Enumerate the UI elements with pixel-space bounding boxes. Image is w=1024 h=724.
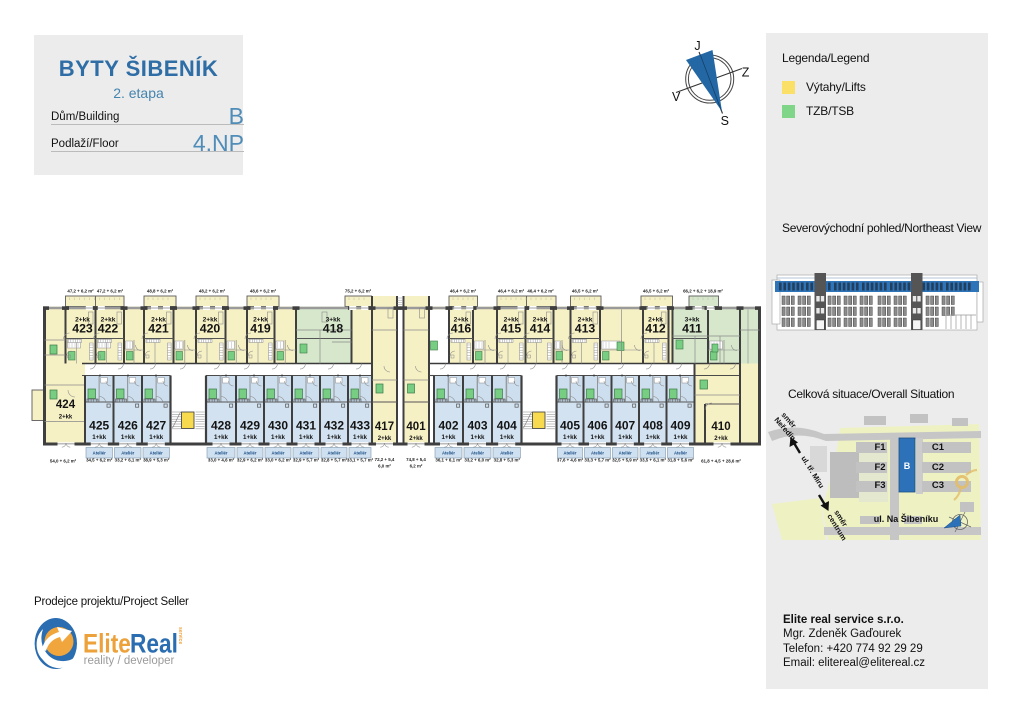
- svg-text:415: 415: [501, 322, 522, 336]
- svg-text:6,0 m²: 6,0 m²: [378, 464, 391, 469]
- svg-text:1+kk: 1+kk: [646, 434, 660, 441]
- svg-text:Ateliér: Ateliér: [327, 451, 340, 456]
- svg-text:427: 427: [146, 419, 166, 433]
- svg-text:1+kk: 1+kk: [353, 434, 367, 441]
- svg-text:Ateliér: Ateliér: [619, 451, 632, 456]
- svg-text:Ateliér: Ateliér: [353, 451, 366, 456]
- svg-text:Ateliér: Ateliér: [299, 451, 312, 456]
- svg-text:33,2 + 6,0 m²: 33,2 + 6,0 m²: [464, 458, 491, 463]
- svg-text:430: 430: [268, 419, 288, 433]
- svg-text:2+kk: 2+kk: [75, 317, 90, 324]
- svg-text:32,5 + 5,9 m²: 32,5 + 5,9 m²: [612, 458, 639, 463]
- svg-text:2+kk: 2+kk: [253, 317, 268, 324]
- svg-text:405: 405: [560, 419, 580, 433]
- svg-text:38,9 + 5,3 m²: 38,9 + 5,3 m²: [143, 458, 170, 463]
- svg-text:Ateliér: Ateliér: [471, 451, 484, 456]
- svg-text:C3: C3: [932, 480, 944, 491]
- svg-text:Ateliér: Ateliér: [646, 451, 659, 456]
- svg-text:431: 431: [296, 419, 316, 433]
- svg-text:2+kk: 2+kk: [454, 317, 469, 324]
- svg-text:1+kk: 1+kk: [500, 434, 514, 441]
- svg-text:416: 416: [451, 322, 472, 336]
- svg-text:1+kk: 1+kk: [299, 434, 313, 441]
- svg-text:3+kk: 3+kk: [326, 317, 341, 324]
- svg-text:408: 408: [643, 419, 663, 433]
- svg-text:432: 432: [324, 419, 344, 433]
- svg-text:433: 433: [350, 419, 370, 433]
- svg-text:ul. Na Šibeníku: ul. Na Šibeníku: [874, 513, 939, 524]
- svg-text:2+kk: 2+kk: [59, 415, 73, 421]
- svg-text:32,9 + 6,2 m²: 32,9 + 6,2 m²: [237, 458, 264, 463]
- svg-text:46,4 + 6,2 m²: 46,4 + 6,2 m²: [527, 289, 554, 294]
- svg-text:2+kk: 2+kk: [203, 317, 218, 324]
- svg-text:36,1 + 6,1 m²: 36,1 + 6,1 m²: [435, 458, 462, 463]
- svg-text:1+kk: 1+kk: [471, 434, 485, 441]
- svg-text:412: 412: [645, 322, 666, 336]
- svg-text:32,8 + 5,7 m²: 32,8 + 5,7 m²: [321, 458, 348, 463]
- svg-text:Ateliér: Ateliér: [243, 451, 256, 456]
- svg-text:404: 404: [497, 419, 517, 433]
- svg-text:2+kk: 2+kk: [378, 436, 392, 442]
- svg-text:37,6 + 4,6 m²: 37,6 + 4,6 m²: [557, 458, 584, 463]
- svg-text:C2: C2: [932, 462, 944, 473]
- svg-text:47,2 + 6,2 m²: 47,2 + 6,2 m²: [97, 289, 124, 294]
- svg-text:1+kk: 1+kk: [149, 434, 163, 441]
- svg-text:2+kk: 2+kk: [504, 317, 519, 324]
- svg-text:Ateliér: Ateliér: [674, 451, 687, 456]
- svg-text:Ateliér: Ateliér: [500, 451, 513, 456]
- svg-text:46,4 + 6,2 m²: 46,4 + 6,2 m²: [498, 289, 525, 294]
- svg-text:1+kk: 1+kk: [442, 434, 456, 441]
- svg-text:33,3 + 5,7 m²: 33,3 + 5,7 m²: [584, 458, 611, 463]
- svg-text:411: 411: [682, 322, 702, 336]
- svg-text:423: 423: [72, 322, 93, 336]
- svg-text:V: V: [672, 90, 681, 104]
- svg-text:418: 418: [323, 322, 344, 336]
- svg-text:1+kk: 1+kk: [214, 434, 228, 441]
- svg-text:422: 422: [98, 322, 119, 336]
- svg-text:33,5 + 6,1 m²: 33,5 + 6,1 m²: [640, 458, 667, 463]
- svg-text:Ateliér: Ateliér: [121, 451, 134, 456]
- svg-text:34,5 + 6,2 m²: 34,5 + 6,2 m²: [86, 458, 113, 463]
- svg-text:2+kk: 2+kk: [101, 317, 116, 324]
- svg-text:401: 401: [406, 421, 426, 433]
- svg-text:421: 421: [148, 322, 169, 336]
- svg-text:B: B: [904, 461, 911, 471]
- svg-text:61,8 + 4,5 + 28,6 m²: 61,8 + 4,5 + 28,6 m²: [701, 459, 741, 464]
- svg-text:Ateliér: Ateliér: [563, 451, 576, 456]
- svg-text:47,2 + 6,2 m²: 47,2 + 6,2 m²: [67, 289, 94, 294]
- svg-text:C1: C1: [932, 442, 945, 453]
- svg-text:429: 429: [240, 419, 260, 433]
- svg-text:66,2 + 6,2 + 18,9 m²: 66,2 + 6,2 + 18,9 m²: [683, 289, 723, 294]
- svg-text:74,8 + 5,4: 74,8 + 5,4: [406, 457, 426, 462]
- svg-text:F1: F1: [874, 442, 886, 453]
- svg-text:2+kk: 2+kk: [714, 436, 728, 442]
- svg-text:426: 426: [118, 419, 138, 433]
- svg-text:1+kk: 1+kk: [327, 434, 341, 441]
- svg-text:2+kk: 2+kk: [648, 317, 663, 324]
- svg-text:2+kk: 2+kk: [578, 317, 593, 324]
- svg-text:1+kk: 1+kk: [271, 434, 285, 441]
- svg-text:3+kk: 3+kk: [685, 317, 700, 324]
- svg-text:Ateliér: Ateliér: [591, 451, 604, 456]
- svg-text:46,5 + 6,2 m²: 46,5 + 6,2 m²: [643, 289, 670, 294]
- svg-text:403: 403: [467, 419, 487, 433]
- svg-text:46,5 + 6,2 m²: 46,5 + 6,2 m²: [572, 289, 599, 294]
- svg-text:32,8 + 5,3 m²: 32,8 + 5,3 m²: [494, 458, 521, 463]
- svg-text:424: 424: [56, 399, 76, 411]
- svg-text:1+kk: 1+kk: [618, 434, 632, 441]
- svg-text:1+kk: 1+kk: [674, 434, 688, 441]
- svg-text:1+kk: 1+kk: [591, 434, 605, 441]
- svg-text:F3: F3: [874, 480, 885, 491]
- svg-text:2+kk: 2+kk: [151, 317, 166, 324]
- svg-text:413: 413: [575, 322, 596, 336]
- svg-text:1+kk: 1+kk: [243, 434, 257, 441]
- svg-text:F2: F2: [874, 462, 885, 473]
- svg-text:407: 407: [615, 419, 635, 433]
- svg-text:419: 419: [250, 322, 271, 336]
- svg-text:2+kk: 2+kk: [533, 317, 548, 324]
- svg-text:33,1 + 5,7 m²: 33,1 + 5,7 m²: [347, 458, 374, 463]
- svg-text:417: 417: [375, 421, 394, 433]
- svg-text:54,0 + 6,2 m²: 54,0 + 6,2 m²: [50, 459, 77, 464]
- svg-text:Ateliér: Ateliér: [214, 451, 227, 456]
- svg-text:Ateliér: Ateliér: [150, 451, 163, 456]
- svg-text:46,4 + 6,2 m²: 46,4 + 6,2 m²: [450, 289, 477, 294]
- svg-text:1+kk: 1+kk: [121, 434, 135, 441]
- svg-text:409: 409: [670, 419, 690, 433]
- svg-text:2+kk: 2+kk: [409, 436, 423, 442]
- svg-text:Ateliér: Ateliér: [442, 451, 455, 456]
- svg-text:48,8 + 6,2 m²: 48,8 + 6,2 m²: [147, 289, 174, 294]
- svg-text:33,0 + 6,2 m²: 33,0 + 6,2 m²: [265, 458, 292, 463]
- svg-text:406: 406: [587, 419, 607, 433]
- svg-text:Ateliér: Ateliér: [271, 451, 284, 456]
- svg-text:48,2 + 6,2 m²: 48,2 + 6,2 m²: [199, 289, 226, 294]
- svg-text:reality / developer: reality / developer: [84, 655, 175, 667]
- svg-text:425: 425: [89, 419, 109, 433]
- svg-text:410: 410: [711, 421, 730, 433]
- svg-text:75,2 + 6,2 m²: 75,2 + 6,2 m²: [345, 289, 372, 294]
- svg-text:428: 428: [211, 419, 231, 433]
- svg-text:32,9 + 5,7 m²: 32,9 + 5,7 m²: [293, 458, 320, 463]
- svg-text:420: 420: [200, 322, 221, 336]
- svg-text:S: S: [721, 114, 729, 128]
- svg-text:6,2 m²: 6,2 m²: [410, 464, 423, 469]
- svg-text:48,6 + 6,2 m²: 48,6 + 6,2 m²: [250, 289, 277, 294]
- svg-text:Z: Z: [742, 66, 750, 80]
- svg-text:33,2 + 6,1 m²: 33,2 + 6,1 m²: [115, 458, 142, 463]
- svg-text:72,2 + 5,4: 72,2 + 5,4: [375, 457, 395, 462]
- svg-text:31,8 + 5,6 m²: 31,8 + 5,6 m²: [667, 458, 694, 463]
- svg-text:33,0 + 4,6 m²: 33,0 + 4,6 m²: [208, 458, 235, 463]
- svg-text:1+kk: 1+kk: [92, 434, 106, 441]
- svg-text:Ateliér: Ateliér: [93, 451, 106, 456]
- svg-text:J: J: [694, 39, 700, 53]
- svg-text:service: service: [177, 627, 183, 644]
- svg-text:402: 402: [438, 419, 458, 433]
- svg-text:414: 414: [530, 322, 551, 336]
- svg-text:1+kk: 1+kk: [563, 434, 577, 441]
